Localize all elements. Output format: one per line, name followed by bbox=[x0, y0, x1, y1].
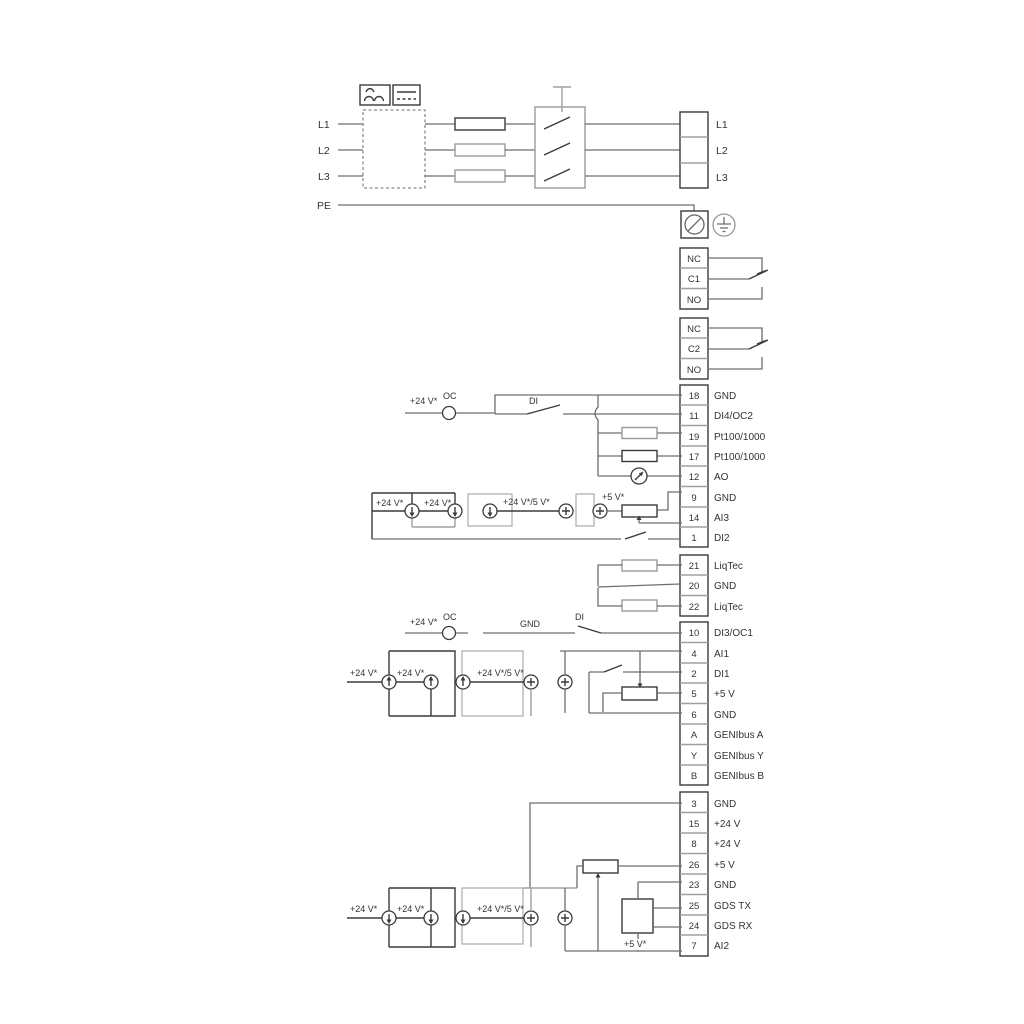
t18: 18 bbox=[689, 391, 700, 402]
t7: 7 bbox=[691, 941, 696, 952]
liqtec-sensor-2 bbox=[622, 600, 657, 611]
di3-switch-blade bbox=[578, 626, 601, 633]
gnd3-wire bbox=[530, 803, 682, 888]
relay1-contact-blade bbox=[749, 270, 768, 279]
tY: Y bbox=[691, 751, 698, 762]
ai2-option-bracket bbox=[462, 888, 523, 944]
t11-label: DI4/OC2 bbox=[714, 411, 753, 422]
t15: 15 bbox=[689, 819, 700, 830]
fuse-l3 bbox=[455, 170, 505, 182]
t8-label: +24 V bbox=[714, 839, 741, 850]
switch-to-terminal-wires bbox=[585, 124, 680, 176]
ai3-pot-to-gnd bbox=[657, 492, 682, 510]
t14: 14 bbox=[689, 513, 700, 524]
wiring-diagram-page: { "accent_colors": {"wire_gray": "#9a9a9… bbox=[0, 0, 1024, 1024]
ai3-5v-label: +5 V* bbox=[602, 492, 625, 502]
ai2-24v-label-2: +24 V* bbox=[397, 904, 425, 914]
ai3-group1-bottom bbox=[412, 518, 455, 527]
oc2-open-collector-icon bbox=[443, 627, 456, 640]
t26: 26 bbox=[689, 860, 700, 871]
ac-icon bbox=[360, 85, 390, 105]
ai3-24v-label-2: +24 V* bbox=[424, 498, 452, 508]
ai2-source-row: +24 V* +24 V* +24 V*/5 V* +5 V* bbox=[347, 803, 682, 951]
ai3-potentiometer bbox=[622, 505, 657, 517]
t5: 5 bbox=[691, 689, 696, 700]
t24: 24 bbox=[689, 921, 700, 932]
t19-label: Pt100/1000 bbox=[714, 432, 766, 443]
ai1-24v-label-2: +24 V* bbox=[397, 668, 425, 678]
relay1-section: NC C1 NO bbox=[680, 248, 768, 309]
oc2-label: OC bbox=[443, 612, 457, 622]
t17: 17 bbox=[689, 452, 700, 463]
ai1-24v-5v-label: +24 V*/5 V* bbox=[477, 668, 524, 678]
mains-input-section: L1 L2 L3 PE L1 L2 L3 bbox=[317, 85, 735, 238]
mains-label-pe: PE bbox=[317, 200, 331, 212]
tY-label: GENIbus Y bbox=[714, 751, 764, 762]
mains-entry-wires bbox=[338, 124, 363, 176]
tA-label: GENIbus A bbox=[714, 730, 764, 741]
t22-label: LiqTec bbox=[714, 602, 743, 613]
converter-to-fuse-wires bbox=[425, 124, 455, 176]
ai2-group1-wires bbox=[347, 888, 455, 947]
ai1-group1-wires bbox=[347, 651, 455, 716]
t23: 23 bbox=[689, 880, 700, 891]
terminal-label-l1: L1 bbox=[716, 119, 728, 131]
pt100-sensor-2 bbox=[622, 451, 657, 462]
di-switch-blade bbox=[527, 405, 560, 414]
t25: 25 bbox=[689, 901, 700, 912]
t1-label: DI2 bbox=[714, 533, 730, 544]
t17-label: Pt100/1000 bbox=[714, 452, 766, 463]
ai1-potentiometer bbox=[622, 687, 657, 700]
tB-label: GENIbus B bbox=[714, 771, 764, 782]
t9-label: GND bbox=[714, 493, 736, 504]
t10-label: DI3/OC1 bbox=[714, 628, 753, 639]
di2-switch-blade bbox=[625, 532, 646, 539]
oc1-open-collector-icon bbox=[443, 407, 456, 420]
relay1-contact-wires bbox=[708, 258, 762, 299]
ai2-24v-label-1: +24 V* bbox=[350, 904, 378, 914]
t2-label: DI1 bbox=[714, 669, 730, 680]
t3: 3 bbox=[691, 799, 696, 810]
relay1-nc: NC bbox=[687, 254, 701, 265]
t12: 12 bbox=[689, 472, 700, 483]
t15-label: +24 V bbox=[714, 819, 741, 830]
oc1-label: OC bbox=[443, 391, 457, 401]
t14-label: AI3 bbox=[714, 513, 729, 524]
ai2-24v-5v-label: +24 V*/5 V* bbox=[477, 904, 524, 914]
t7-label: AI2 bbox=[714, 941, 729, 952]
di4-oc2-circuit: +24 V* OC DI bbox=[405, 391, 682, 484]
gds-sensor-box bbox=[622, 899, 653, 933]
relay2-contact-blade bbox=[749, 340, 768, 349]
t24-label: GDS RX bbox=[714, 921, 753, 932]
terminal-label-l3: L3 bbox=[716, 172, 728, 184]
fuse-to-switch-wires bbox=[505, 124, 535, 176]
relay1-c1: C1 bbox=[688, 274, 700, 285]
frequency-converter-box bbox=[363, 110, 425, 188]
t12-label: AO bbox=[714, 472, 729, 483]
liqtec-section: 21 20 22 LiqTec GND LiqTec bbox=[598, 555, 743, 616]
tb-comm-section: 10 4 2 5 6 A Y B DI3/OC1 AI1 DI1 +5 V GN… bbox=[680, 622, 764, 785]
tA: A bbox=[691, 730, 698, 741]
di-box-top-wire bbox=[495, 395, 682, 414]
mains-label-l3: L3 bbox=[318, 171, 330, 183]
tb-power-section: 3 15 8 26 23 25 24 7 GND +24 V +24 V +5 … bbox=[680, 792, 753, 956]
t6-label: GND bbox=[714, 710, 736, 721]
ai3-option-bracket-2 bbox=[576, 494, 594, 526]
t4: 4 bbox=[691, 649, 696, 660]
relay2-c2: C2 bbox=[688, 344, 700, 355]
ai3-wiper-wire bbox=[639, 519, 682, 523]
di3-oc1-circuit: +24 V* OC GND DI bbox=[405, 612, 682, 640]
oc2-24v-label: +24 V* bbox=[410, 617, 438, 627]
liqtec-sensor-1 bbox=[622, 560, 657, 571]
pe-wire bbox=[338, 205, 694, 211]
ai2-potentiometer bbox=[583, 860, 618, 873]
t19: 19 bbox=[689, 432, 700, 443]
t3-label: GND bbox=[714, 799, 736, 810]
t23-label: GND bbox=[714, 880, 736, 891]
relay2-no: NO bbox=[687, 365, 701, 376]
t4-label: AI1 bbox=[714, 649, 729, 660]
t25-label: GDS TX bbox=[714, 901, 751, 912]
terminal-block-mains bbox=[680, 112, 708, 188]
pt100-sensor-1 bbox=[622, 428, 657, 439]
ai1-24v-label-1: +24 V* bbox=[350, 668, 378, 678]
ai1-option-bracket bbox=[462, 651, 523, 716]
t21-label: LiqTec bbox=[714, 561, 743, 572]
t20-label: GND bbox=[714, 581, 736, 592]
t9: 9 bbox=[691, 493, 696, 504]
di1-switch-label: DI bbox=[529, 396, 538, 406]
wiring-diagram: L1 L2 L3 PE L1 L2 L3 bbox=[0, 0, 1024, 1024]
fuse-l1 bbox=[455, 118, 505, 130]
t5-label: +5 V bbox=[714, 689, 735, 700]
relay2-nc: NC bbox=[687, 324, 701, 335]
di3-switch-label: DI bbox=[575, 612, 584, 622]
t6: 6 bbox=[691, 710, 696, 721]
tB: B bbox=[691, 771, 697, 782]
tb-io-section: 18 11 19 17 12 9 14 1 GND DI4/OC2 Pt100/… bbox=[680, 385, 766, 547]
ai3-source-row: +24 V* +24 V* +24 V*/5 V* +5 V* bbox=[372, 492, 682, 539]
t10: 10 bbox=[689, 628, 700, 639]
relay1-no: NO bbox=[687, 295, 701, 306]
t1: 1 bbox=[691, 533, 696, 544]
t2: 2 bbox=[691, 669, 696, 680]
t20: 20 bbox=[689, 581, 700, 592]
t11: 11 bbox=[689, 411, 699, 422]
relay2-section: NC C2 NO bbox=[680, 318, 768, 379]
ai3-24v-label-1: +24 V* bbox=[376, 498, 404, 508]
ai1-top-rail bbox=[560, 651, 682, 713]
gds-5v-label: +5 V* bbox=[624, 939, 647, 949]
relay2-contact-wires bbox=[708, 328, 762, 369]
di1-switch-blade bbox=[604, 665, 622, 672]
sensor-rail bbox=[595, 395, 598, 476]
t26-label: +5 V bbox=[714, 860, 735, 871]
fuse-l2 bbox=[455, 144, 505, 156]
ai1-source-row: +24 V* +24 V* +24 V*/5 V* bbox=[347, 651, 682, 716]
ai3-24v-5v-label: +24 V*/5 V* bbox=[503, 497, 550, 507]
t21: 21 bbox=[689, 561, 700, 572]
terminal-label-l2: L2 bbox=[716, 145, 728, 157]
mains-label-l2: L2 bbox=[318, 145, 330, 157]
t8: 8 bbox=[691, 839, 696, 850]
dc-icon bbox=[393, 85, 420, 105]
gnd-wire-label: GND bbox=[520, 619, 541, 629]
t18-label: GND bbox=[714, 391, 736, 402]
t22: 22 bbox=[689, 602, 700, 613]
mains-label-l1: L1 bbox=[318, 119, 330, 131]
oc1-24v-label: +24 V* bbox=[410, 396, 438, 406]
